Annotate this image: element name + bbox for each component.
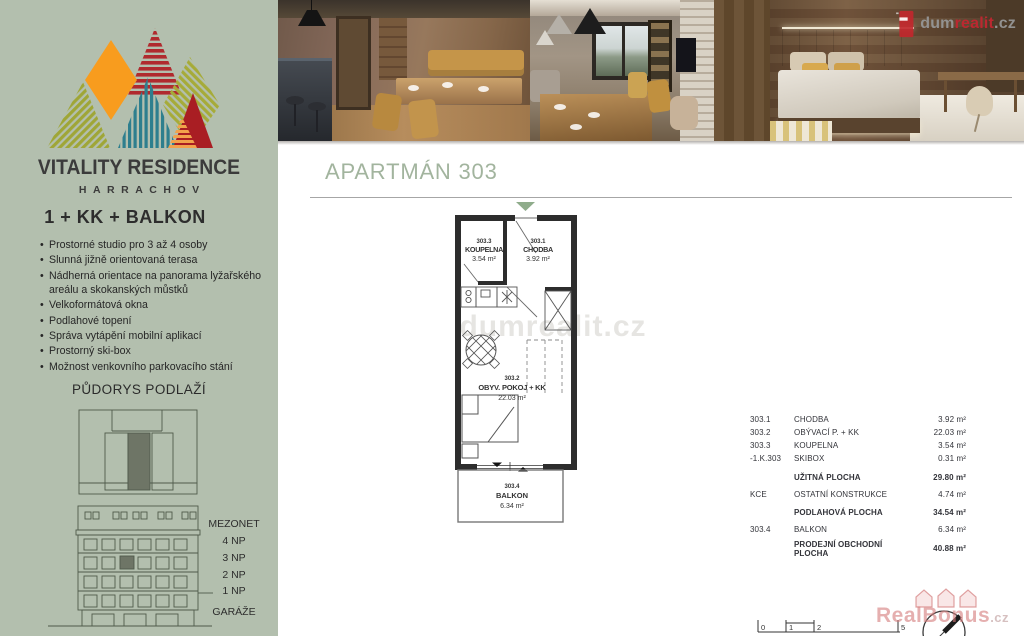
- table-row: 303.3KOUPELNA3.54 m²: [750, 439, 966, 452]
- agency-logo-icon: [896, 10, 916, 38]
- feature-item: Správa vytápění mobilní aplikací: [40, 330, 266, 344]
- photo-detail: [646, 79, 672, 114]
- wardrobe: [545, 291, 571, 330]
- facade-windows: [84, 539, 187, 607]
- table-row-total: PODLAHOVÁ PLOCHA34.54 m²: [750, 506, 966, 519]
- area-table: 303.1CHODBA3.92 m² 303.2OBÝVACÍ P. + KK2…: [750, 413, 966, 555]
- photo-detail: [944, 80, 947, 112]
- table-row-total: UŽITNÁ PLOCHA29.80 m²: [750, 471, 966, 484]
- photo-detail: [1014, 80, 1017, 112]
- photo-detail: [938, 72, 1024, 80]
- svg-text:CHODBA: CHODBA: [523, 245, 553, 254]
- photo-detail: [546, 14, 572, 34]
- svg-text:OBYV. POKOJ + KK: OBYV. POKOJ + KK: [478, 383, 546, 392]
- photo-detail: [770, 121, 832, 141]
- table-row: 303.2OBÝVACÍ P. + KK22.03 m²: [750, 426, 966, 439]
- photo-detail: [372, 92, 403, 131]
- photo-detail: [622, 22, 625, 80]
- svg-text:303.2: 303.2: [504, 376, 520, 382]
- photo-detail: [966, 86, 993, 116]
- brand-name: VITALITY RESIDENCE: [11, 156, 267, 180]
- photo-detail: [554, 104, 566, 110]
- photo-detail: [676, 38, 696, 72]
- photo-detail: [336, 16, 371, 110]
- svg-text:0: 0: [761, 623, 765, 632]
- photo-strip: dumrealit.cz: [278, 0, 1024, 141]
- feature-item: Slunná jižně orientovaná terasa: [40, 254, 266, 268]
- agency-logo: dumrealit.cz: [896, 10, 1016, 38]
- highlighted-apartment-window: [120, 556, 134, 569]
- building-diagrams: [40, 403, 220, 636]
- page-title: APARTMÁN 303: [325, 159, 498, 185]
- highlighted-unit: [128, 433, 150, 490]
- svg-text:3.92 m²: 3.92 m²: [526, 256, 550, 263]
- svg-text:1: 1: [789, 623, 793, 632]
- photo-detail: [628, 72, 647, 98]
- photo-detail: [670, 96, 698, 130]
- photo-detail: [379, 18, 407, 80]
- photo-detail: [540, 94, 652, 141]
- photo-living-room: [530, 0, 770, 141]
- svg-text:KOUPELNA: KOUPELNA: [465, 245, 503, 254]
- floor-label-garaze: GARÁŽE: [204, 606, 264, 618]
- svg-text:22.03 m²: 22.03 m²: [498, 395, 526, 402]
- table-row-total: PRODEJNÍ OBCHODNÍ PLOCHA40.88 m²: [750, 542, 966, 555]
- kitchen-units: [461, 287, 517, 307]
- photo-detail: [478, 86, 489, 92]
- feature-item: Nádherná orientace na panorama lyžařskéh…: [40, 270, 266, 298]
- feature-item: Podlahové topení: [40, 315, 266, 329]
- photo-detail: [408, 98, 439, 139]
- photo-detail: [778, 70, 920, 120]
- brand-location: HARRACHOV: [0, 184, 278, 196]
- floor-plan-drawing: 303.3 KOUPELNA 3.54 m² 303.1 CHODBA 3.92…: [440, 196, 590, 528]
- photo-detail: [442, 82, 453, 88]
- door-swings: [464, 218, 537, 317]
- photo-detail: [408, 85, 419, 91]
- dining-table: [458, 327, 504, 371]
- table-row: 303.1CHODBA3.92 m²: [750, 413, 966, 426]
- photo-detail: [570, 124, 582, 130]
- unit-type-heading: 1 + KK + BALKON: [0, 207, 250, 228]
- table-row: KCEOSTATNÍ KONSTRUKCE4.74 m²: [750, 488, 966, 501]
- floor-label-1np: 1 NP: [204, 585, 264, 597]
- photo-detail: [294, 104, 296, 126]
- svg-text:6.34 m²: 6.34 m²: [500, 503, 524, 510]
- svg-text:3.54 m²: 3.54 m²: [472, 256, 496, 263]
- sidebar: VITALITY RESIDENCE HARRACHOV 1 + KK + BA…: [0, 0, 278, 636]
- title-divider: [310, 197, 1012, 198]
- roof-windows: [85, 512, 196, 519]
- mountains-logo-icon: [40, 25, 225, 150]
- svg-text:2: 2: [817, 623, 821, 632]
- photo-detail: [316, 110, 318, 132]
- floor-label-4np: 4 NP: [204, 535, 264, 547]
- photo-detail: [782, 27, 914, 29]
- floorplan-section-heading: PŮDORYS PODLAŽÍ: [0, 382, 278, 397]
- entrance-marker-icon: [516, 202, 535, 211]
- floor-label-3np: 3 NP: [204, 552, 264, 564]
- svg-text:303.4: 303.4: [504, 484, 520, 490]
- photo-kitchen-dining: [278, 0, 530, 141]
- photo-bedroom: dumrealit.cz: [770, 0, 1024, 141]
- feature-item: Prostorné studio pro 3 až 4 osoby: [40, 239, 266, 253]
- photo-detail: [588, 112, 600, 118]
- feature-list: Prostorné studio pro 3 až 4 osoby Slunná…: [40, 239, 266, 376]
- photo-detail: [428, 50, 524, 76]
- table-row: -1.K.303SKIBOX0.31 m²: [750, 452, 966, 465]
- photo-detail: [311, 0, 312, 10]
- floor-label-mezonet: MEZONET: [204, 518, 264, 530]
- feature-item: Prostorný ski-box: [40, 345, 266, 359]
- brochure-page: VITALITY RESIDENCE HARRACHOV 1 + KK + BA…: [0, 0, 1024, 636]
- feature-item: Velkoformátová okna: [40, 299, 266, 313]
- table-row: 303.4BALKON6.34 m²: [750, 523, 966, 536]
- feature-item: Možnost venkovního parkovacího stání: [40, 361, 266, 375]
- svg-text:BALKON: BALKON: [496, 491, 528, 500]
- photo-detail: [714, 0, 770, 141]
- floor-label-2np: 2 NP: [204, 569, 264, 581]
- corner-watermark: RealBonus.cz: [876, 604, 1009, 628]
- agency-logo-text: dumrealit.cz: [920, 15, 1016, 33]
- bed: [462, 395, 518, 458]
